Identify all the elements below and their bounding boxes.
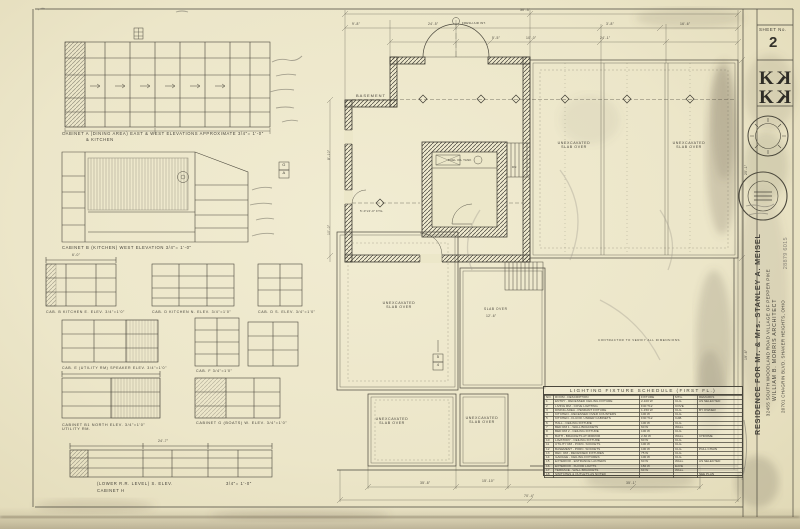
sheet-number: 2 — [769, 34, 778, 51]
cabinet-elevations — [46, 28, 302, 477]
dim-24-7: 24'-7" — [158, 440, 168, 444]
dim-10-0: 10'-0" — [526, 37, 536, 41]
dim-10-0-vert: 10'-0" — [328, 225, 332, 235]
sheet-no-label: SHEET No. — [759, 27, 787, 32]
dim-15-10: 15'-10" — [482, 480, 495, 484]
caption-cabinet-b: CABINET B (KITCHEN) WEST ELEVATION 3/4"=… — [62, 246, 192, 251]
schedule-title: LIGHTING FIXTURE SCHEDULE (FIRST FL.) — [544, 387, 742, 395]
label-unexcavated-1: UNEXCAVATED SLAB OVER — [553, 141, 595, 149]
section-marker-sheet: 4 — [433, 363, 443, 368]
caption-cab-b-east: CAB. B KITCHEN E. ELEV. 3/4"=1'0" — [46, 310, 125, 314]
caption-cabinet-a2: & KITCHEN — [86, 138, 114, 143]
dim-19-6-vert: 19'-6" — [745, 350, 749, 360]
label-stair-dn: DN — [512, 166, 517, 169]
lighting-fixture-schedule: LIGHTING FIXTURE SCHEDULE (FIRST FL.) NO… — [543, 386, 743, 476]
dim-5-5: 5'-5" — [492, 37, 500, 41]
label-fresh-air: FRESH AIR INT. — [462, 22, 486, 25]
dim-24-5: 24'-5" — [428, 23, 438, 27]
section-marker-number: 5 — [433, 355, 443, 360]
dim-12-6: 12'-6" — [486, 315, 496, 319]
label-basement: BASEMENT — [356, 94, 386, 99]
schedule-table: NO.ROOM - DESCRIPTIONFIXTUREMTG.REMARKS … — [544, 395, 743, 478]
schedule-body: 1ENTRY - RECESSED CEILING FIXTURE2-100 W… — [545, 400, 743, 477]
schedule-row: 3DINING AREA - PENDANT FIXTURE1-150 WCLG… — [545, 408, 743, 412]
label-unexcavated-4: UNEXCAVATED SLAB OVER — [371, 417, 413, 425]
caption-cabinet-h: CABINET H — [97, 489, 125, 494]
dim-9-8: 9'-8" — [352, 23, 360, 27]
blueprint-sheet: K K K K — [0, 0, 800, 529]
caption-cabinet-h-elev: (LOWER R.R. LEVEL) S. ELEV. — [97, 482, 173, 487]
caption-cabinet-b1: CABINET B1 NORTH ELEV. 3/4"=1'0" UTILITY… — [62, 423, 145, 432]
schedule-row: 15EXTERIOR - ENTRANCE LANTERN60 WWALLAS … — [545, 460, 743, 464]
dim-16-6: 16'-6" — [680, 23, 690, 27]
dim-30-3: 30'-3" — [520, 9, 530, 13]
detail-marker-sheet: A — [279, 171, 289, 176]
title-block-architect: WILLIAM B. MORRIS ARCHITECT — [773, 240, 779, 460]
label-slab-over: SLAB OVER — [484, 308, 507, 312]
vault-interior — [432, 152, 497, 227]
title-block-project: RESIDENCE FOR Mr. & Mrs. STANLEY A. MEIS… — [754, 224, 762, 444]
svg-text:K: K — [759, 87, 774, 108]
label-unexcavated-2: UNEXCAVATED SLAB OVER — [668, 141, 710, 149]
dim-25-1-vert: 25'-1" — [745, 165, 749, 175]
caption-cabinet-g: CABINET G (BOATS) W. ELEV. 3/4"=1'0" — [196, 421, 287, 425]
dim-35-1: 35'-1" — [626, 482, 636, 486]
schedule-row: 18SWITCHES & OUTLETS AS NOTEDSEE PLAN — [545, 473, 743, 477]
svg-text:K: K — [776, 68, 791, 89]
label-unexcavated-5: UNEXCAVATED SLAB OVER — [461, 416, 503, 424]
svg-text:K: K — [759, 68, 774, 89]
schedule-row: 12BASEMENT - PORC. SOCKETS100 WCLG.PULL … — [545, 447, 743, 451]
beams-and-columns — [352, 63, 734, 255]
detail-marker-letter: G — [279, 163, 289, 168]
svg-text:K: K — [776, 87, 791, 108]
caption-cabinet-h-scale: 3/4"= 1'-0" — [226, 482, 252, 487]
title-block-address: 32455 SOUTH WOODLAND ROAD VILLAGE OF PEP… — [765, 233, 770, 453]
dim-24-1: 24'-1" — [600, 37, 610, 41]
caption-cab-d-north: CAB. D KITCHEN N. ELEV. 3/4"=1'0" — [152, 310, 231, 314]
caption-cab-e: CAB. E (UTILITY RM) SPEAKER ELEV. 3/4"=1… — [62, 366, 167, 370]
dim-6-0: 6'-0" — [72, 254, 80, 258]
label-tank-room: FUEL OIL TANK — [448, 159, 471, 162]
caption-cab-d-south: CAB. D S. ELEV. 3/4"=1'0" — [258, 310, 316, 314]
dim-35-8: 35'-8" — [420, 482, 430, 486]
dim-8-10-vert: 8'-10" — [328, 150, 332, 160]
label-contractor-note: CONTRACTOR TO VERIFY ALL DIMENSIONS — [598, 339, 680, 342]
dim-70-4: 70'-4" — [524, 495, 534, 499]
handwritten-job-number: 28879 6015 — [783, 203, 789, 303]
caption-cab-f: CAB. F 3/4"=1'0" — [196, 369, 233, 373]
label-footing-note: 5'-0"x3'-0" FTG. — [360, 210, 384, 213]
label-unexcavated-3: UNEXCAVATED SLAB OVER — [378, 301, 420, 309]
schedule-header-row: NO.ROOM - DESCRIPTIONFIXTUREMTG.REMARKS — [545, 396, 743, 400]
schedule-row: 1ENTRY - RECESSED CEILING FIXTURE2-100 W… — [545, 400, 743, 404]
dim-3-8: 3'-8" — [606, 23, 614, 27]
